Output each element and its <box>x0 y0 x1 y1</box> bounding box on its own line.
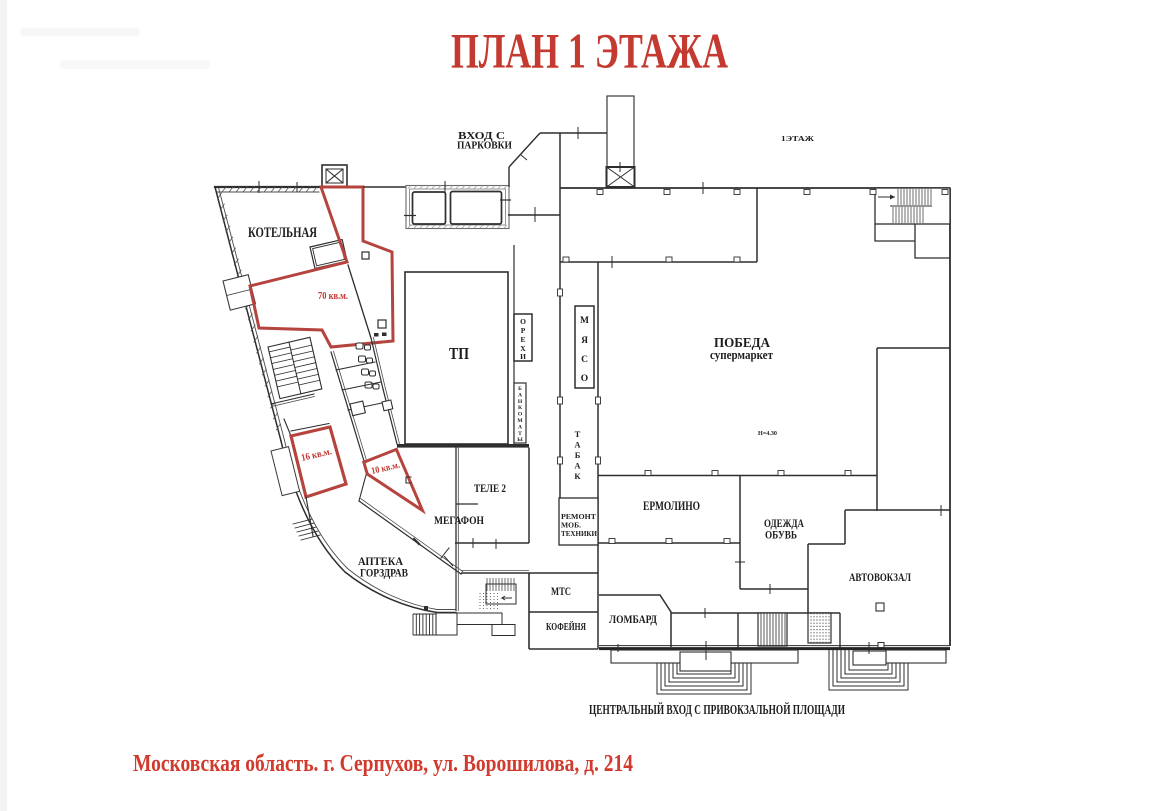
svg-text:ПЛАН 1 ЭТАЖА: ПЛАН 1 ЭТАЖА <box>451 23 728 79</box>
svg-text:1ЭТАЖ: 1ЭТАЖ <box>781 134 815 143</box>
svg-text:ТЕЛЕ 2: ТЕЛЕ 2 <box>474 483 506 495</box>
svg-text:МЕГАФОН: МЕГАФОН <box>434 515 484 527</box>
svg-text:ОРЕХИ: ОРЕХИ <box>520 317 526 361</box>
svg-text:супермаркет: супермаркет <box>710 348 773 362</box>
svg-text:Московская область. г. Серпухо: Московская область. г. Серпухов, ул. Вор… <box>133 751 633 777</box>
svg-text:ПАРКОВКИ: ПАРКОВКИ <box>457 140 512 152</box>
svg-text:ЦЕНТРАЛЬНЫЙ ВХОД С ПРИВОКЗАЛЬН: ЦЕНТРАЛЬНЫЙ ВХОД С ПРИВОКЗАЛЬНОЙ ПЛОЩАДИ <box>589 702 845 717</box>
svg-text:ГОРЗДРАВ: ГОРЗДРАВ <box>360 566 408 580</box>
svg-text:КОФЕЙНЯ: КОФЕЙНЯ <box>546 621 587 633</box>
svg-text:АВТОВОКЗАЛ: АВТОВОКЗАЛ <box>849 572 911 584</box>
svg-text:КОТЕЛЬНАЯ: КОТЕЛЬНАЯ <box>248 225 317 241</box>
svg-text:Н=4.30: Н=4.30 <box>758 430 777 437</box>
svg-text:70 кв.м.: 70 кв.м. <box>318 291 348 302</box>
svg-text:ТП: ТП <box>449 344 469 363</box>
svg-text:ОБУВЬ: ОБУВЬ <box>765 528 797 542</box>
svg-text:ЕРМОЛИНО: ЕРМОЛИНО <box>643 498 700 513</box>
svg-text:МТС: МТС <box>551 586 571 598</box>
svg-text:ЛОМБАРД: ЛОМБАРД <box>609 614 657 626</box>
